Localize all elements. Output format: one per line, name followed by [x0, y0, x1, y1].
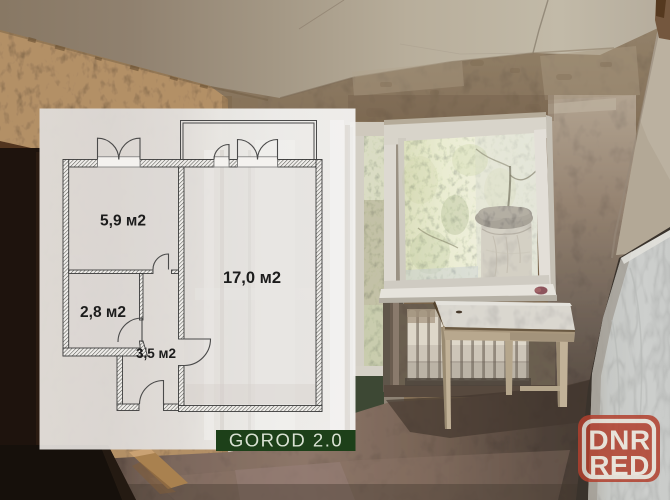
svg-text:2,8 м2: 2,8 м2: [80, 304, 126, 321]
svg-text:GOROD 2.0: GOROD 2.0: [229, 430, 343, 451]
svg-text:3,5 м2: 3,5 м2: [136, 346, 176, 361]
svg-text:17,0 м2: 17,0 м2: [223, 269, 281, 287]
svg-text:RED: RED: [589, 450, 650, 481]
svg-text:5,9 м2: 5,9 м2: [100, 213, 146, 230]
